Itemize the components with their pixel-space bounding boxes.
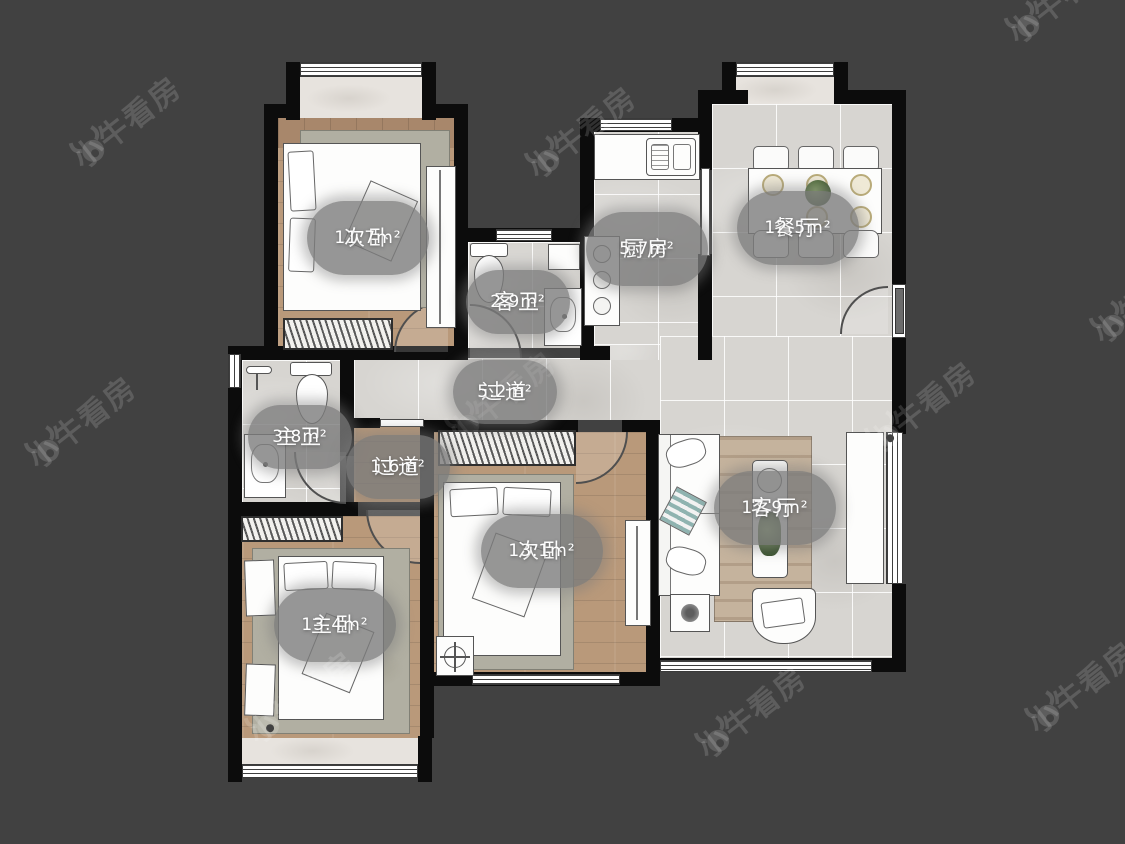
window — [300, 62, 422, 77]
brand-watermark-text: 小牛看房 — [1016, 629, 1125, 742]
window — [886, 432, 903, 584]
dining-chair — [798, 230, 834, 258]
pillow — [287, 150, 316, 211]
pillow — [288, 218, 316, 273]
plate — [850, 174, 872, 196]
dining-bay-sill — [736, 76, 834, 104]
wardrobe-divider — [439, 170, 441, 324]
wall — [420, 420, 434, 738]
entry-door-leaf — [895, 288, 904, 334]
pillow — [449, 487, 498, 517]
wall — [622, 420, 660, 432]
wall — [264, 104, 278, 360]
hall-floor — [354, 358, 660, 420]
kitchen-sink — [646, 138, 696, 176]
window — [228, 354, 241, 388]
ac-floor-unit — [436, 636, 474, 676]
bath-fixture — [548, 244, 580, 270]
window — [242, 764, 418, 778]
shower-hose — [256, 374, 258, 390]
bull-logo-icon — [18, 420, 74, 476]
window — [472, 674, 620, 685]
closet-hatch — [283, 318, 393, 350]
wall — [418, 736, 432, 782]
bull-logo-icon — [1083, 295, 1125, 351]
brand-watermark-text: 小牛看房 — [61, 64, 189, 177]
pillow — [331, 561, 376, 591]
sink — [544, 288, 582, 346]
wall — [722, 62, 736, 104]
table-plant — [758, 512, 781, 556]
wall — [580, 346, 610, 360]
window — [736, 62, 834, 77]
wall — [228, 502, 242, 750]
sink-basin — [673, 144, 691, 170]
door-leaf-kitchen — [701, 168, 710, 256]
plate — [762, 174, 784, 196]
bull-logo-icon — [998, 0, 1054, 51]
brand-watermark-text: 小牛看房 — [996, 0, 1124, 52]
nightstand — [244, 663, 276, 716]
cabinet — [625, 520, 651, 626]
door-leaf-hall-small — [380, 419, 424, 427]
burner — [593, 297, 611, 315]
tray — [757, 468, 782, 493]
closet-hatch — [241, 516, 343, 542]
sink-drain — [562, 314, 567, 319]
burner — [593, 271, 611, 289]
hall-small-floor — [354, 420, 420, 502]
shower-head — [246, 366, 272, 374]
side-table-flower — [681, 604, 699, 622]
bull-logo-icon — [688, 710, 744, 766]
wall — [228, 736, 242, 782]
window — [496, 229, 552, 241]
pillow — [502, 487, 551, 517]
wall — [698, 254, 712, 360]
wardrobe — [426, 166, 456, 328]
brand-watermark-text: 小牛看房 — [16, 364, 144, 477]
table-plant — [805, 180, 831, 206]
burner — [593, 245, 611, 263]
sink-basin — [651, 144, 669, 170]
sink — [244, 434, 286, 498]
pillow — [283, 561, 328, 591]
wall — [892, 338, 906, 434]
wall — [352, 418, 380, 428]
balcony-floor-top-left — [300, 77, 422, 120]
bull-logo-icon — [63, 120, 119, 176]
dining-chair — [753, 230, 789, 258]
nightstand — [244, 559, 276, 616]
floorplan-image: 次卧 11.7m² 客卫 2.9m² 厨房 5.7m² 餐厅 12.5m² 过道… — [0, 0, 1125, 844]
wall — [340, 346, 354, 456]
wall — [892, 90, 906, 286]
dining-chair — [843, 230, 879, 258]
ac-icon-line — [454, 642, 456, 672]
wall — [834, 62, 848, 104]
cabinet-divider — [636, 526, 638, 620]
window — [660, 660, 872, 672]
bull-logo-icon — [1018, 685, 1074, 741]
brand-watermark-text: 小牛看房 — [1081, 239, 1125, 352]
master-bay-sill — [242, 738, 418, 764]
wall — [228, 502, 358, 516]
window — [600, 118, 672, 131]
plate — [806, 206, 828, 228]
bay-window-seat — [846, 432, 884, 584]
plate — [850, 206, 872, 228]
bull-logo-icon — [518, 130, 574, 186]
stove — [584, 236, 620, 326]
closet-hatch — [438, 430, 576, 466]
